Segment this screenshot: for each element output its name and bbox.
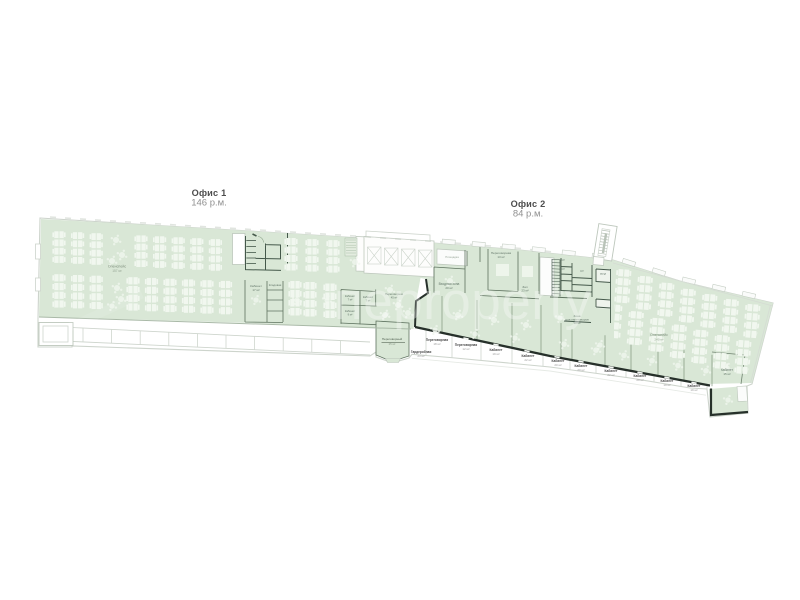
svg-text:19 м²: 19 м² — [690, 388, 697, 392]
svg-text:157 м²: 157 м² — [112, 269, 121, 273]
svg-text:Кладовая: Кладовая — [269, 283, 282, 287]
svg-text:Опенспейс: Опенспейс — [650, 333, 668, 337]
svg-text:25 м²: 25 м² — [389, 342, 396, 346]
svg-text:19 м²: 19 м² — [663, 383, 670, 387]
svg-text:18 м²: 18 м² — [433, 342, 440, 346]
svg-text:13 м²: 13 м² — [497, 255, 504, 259]
svg-text:15 м²: 15 м² — [723, 372, 730, 376]
svg-text:20 м²: 20 м² — [577, 368, 584, 372]
svg-text:240 м²: 240 м² — [654, 338, 663, 342]
svg-text:пеproperty: пеproperty — [334, 272, 592, 331]
svg-text:20 м²: 20 м² — [636, 378, 643, 382]
svg-text:СУ: СУ — [561, 258, 565, 262]
svg-text:22 м²: 22 м² — [524, 358, 531, 362]
svg-text:Офис 2: Офис 2 — [511, 199, 546, 209]
svg-text:22 м²: 22 м² — [607, 373, 614, 377]
svg-text:17 м²: 17 м² — [252, 288, 259, 292]
svg-text:12 м²: 12 м² — [462, 347, 469, 351]
svg-text:20 м²: 20 м² — [554, 363, 561, 367]
svg-text:146 р.м.: 146 р.м. — [191, 198, 227, 209]
svg-text:СУ: СУ — [561, 267, 565, 271]
svg-text:19 м²: 19 м² — [492, 352, 499, 356]
svg-text:Опенспейс: Опенспейс — [108, 265, 126, 269]
svg-text:ПУИ: ПУИ — [600, 272, 606, 276]
svg-text:Переговорный: Переговорный — [382, 337, 403, 341]
svg-text:84 р.м.: 84 р.м. — [513, 209, 543, 220]
svg-text:Офис 1: Офис 1 — [192, 188, 227, 198]
svg-text:Площадка: Площадка — [445, 255, 459, 259]
svg-text:23 м²: 23 м² — [417, 354, 424, 358]
